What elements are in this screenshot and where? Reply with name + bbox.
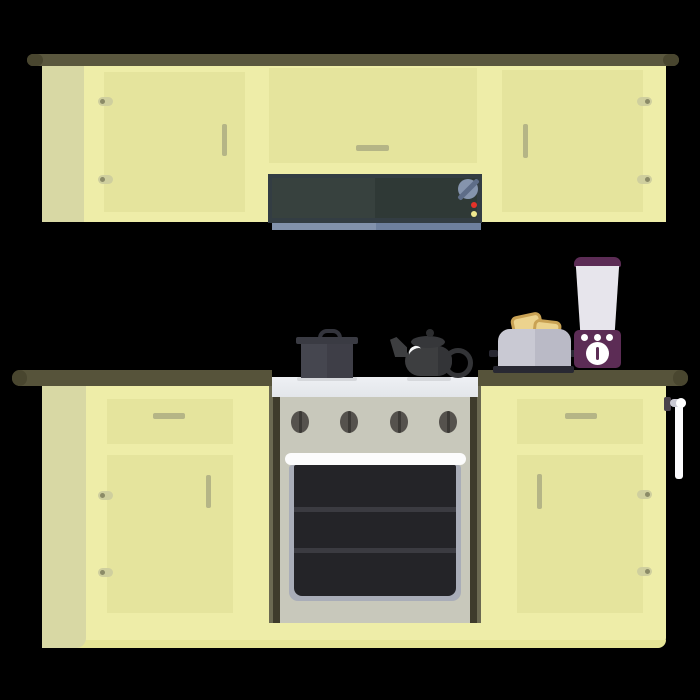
teapot-shadow: [407, 377, 451, 381]
countertop-left-cap: [12, 370, 27, 386]
lower-left-door-hinge-bottom: [98, 568, 113, 577]
toaster-body-right: [535, 329, 571, 366]
pot-body-left: [301, 344, 327, 378]
right-drawer-handle: [565, 413, 597, 419]
upper-left-door-handle: [222, 124, 227, 156]
microwave-bottom-bar-right: [376, 223, 481, 230]
stove-gap-right-dark: [470, 386, 477, 623]
microwave-bottom-bar-left: [272, 223, 376, 230]
left-drawer-handle: [153, 413, 185, 419]
hanging-towel: [675, 407, 683, 479]
upper-cabinet-trim: [27, 54, 679, 66]
lower-left-door-hinge-top: [98, 491, 113, 500]
upper-left-door-hinge-bottom: [98, 175, 113, 184]
stove-knob-3: [390, 411, 408, 433]
teapot-lid-knob: [426, 329, 434, 337]
upper-right-door-hinge-top: [637, 97, 652, 106]
countertop-left: [12, 370, 272, 386]
upper-center-door-handle: [356, 145, 389, 151]
blender-button-1: [581, 334, 588, 341]
left-door-panel: [107, 455, 233, 613]
right-drawer-panel: [517, 399, 643, 444]
oven-interior: [294, 465, 456, 596]
right-door-handle: [537, 474, 542, 509]
microwave-red-indicator: [471, 202, 477, 208]
microwave-door-left: [272, 178, 375, 218]
blender-jar: [574, 266, 621, 330]
countertop-right-cap: [673, 370, 688, 386]
toaster-body-left: [498, 329, 535, 366]
stove-knob-1: [291, 411, 309, 433]
upper-left-door-hinge-top: [98, 97, 113, 106]
blender-lid: [574, 257, 621, 267]
kitchen-scene: [0, 0, 700, 700]
upper-right-door-handle: [523, 124, 528, 158]
upper-cabinet-side-panel: [42, 66, 84, 222]
right-door-panel: [517, 455, 643, 613]
blender-button-2: [594, 334, 601, 341]
oven-rack-bottom: [294, 548, 456, 553]
toaster-base: [493, 366, 574, 373]
stove-knob-4: [439, 411, 457, 433]
upper-trim-right-cap: [663, 54, 679, 66]
teapot-spout: [390, 337, 407, 357]
lower-right-door-hinge-top: [637, 490, 652, 499]
blender-dial: [586, 342, 609, 365]
oven-rack-top: [294, 507, 456, 512]
lower-cabinet-side-panel: [42, 386, 86, 648]
left-door-handle: [206, 475, 211, 508]
pot-body-right: [327, 344, 353, 378]
pot-lid: [296, 337, 358, 344]
toaster-lever-left: [489, 350, 498, 357]
left-drawer-panel: [107, 399, 233, 444]
stove-gap-left-dark: [273, 386, 280, 623]
stove-knob-2: [340, 411, 358, 433]
microwave-yellow-indicator: [471, 211, 477, 217]
oven-door-handle: [285, 453, 466, 465]
upper-right-door-hinge-bottom: [637, 175, 652, 184]
blender-button-3: [606, 334, 613, 341]
stove-gap-right-light: [477, 386, 481, 623]
lower-right-door-hinge-bottom: [637, 567, 652, 576]
lower-cabinet-bottom-strip: [42, 640, 666, 648]
upper-trim-left-cap: [27, 54, 43, 66]
